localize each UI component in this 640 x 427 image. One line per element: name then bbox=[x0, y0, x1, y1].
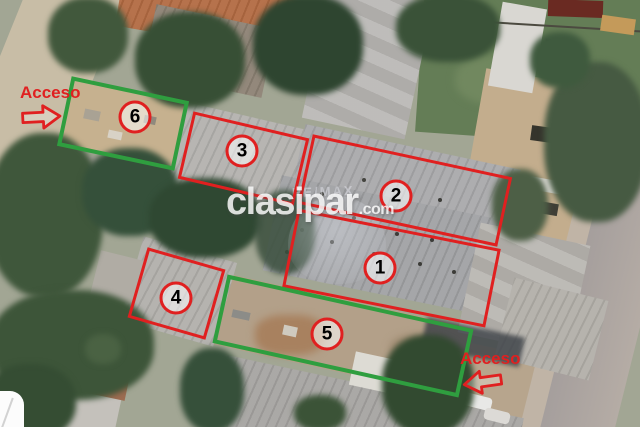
watermark-brand: clasipar bbox=[226, 183, 358, 221]
roof-vents bbox=[0, 0, 4, 4]
access-label-top-left: Acceso bbox=[20, 84, 80, 101]
tree-canopy bbox=[48, 0, 128, 73]
lot-number-badge-5: 5 bbox=[311, 318, 344, 351]
tree-canopy bbox=[253, 0, 363, 95]
corner-logo-line bbox=[0, 398, 14, 427]
listing-photo: RE/MAX 123456 Acceso Acceso clasipar .co… bbox=[0, 0, 640, 427]
lot-number-badge-3: 3 bbox=[226, 135, 259, 168]
tree-canopy bbox=[294, 395, 346, 427]
tree-canopy bbox=[530, 32, 590, 88]
access-label-bottom-right: Acceso bbox=[460, 350, 520, 367]
lot-number-badge-1: 1 bbox=[364, 252, 397, 285]
truck-top-right bbox=[548, 0, 604, 18]
tree-canopy bbox=[85, 334, 121, 364]
tree-canopy bbox=[180, 348, 244, 427]
clasipar-watermark: clasipar .com bbox=[226, 183, 394, 221]
access-arrow-left-icon bbox=[460, 366, 506, 403]
tree-canopy bbox=[396, 0, 500, 62]
access-arrow-right-icon bbox=[20, 102, 63, 137]
watermark-tld: .com bbox=[359, 202, 394, 218]
corner-logo-box bbox=[0, 391, 24, 427]
lot-number-badge-6: 6 bbox=[119, 101, 152, 134]
lot-number-badge-4: 4 bbox=[160, 282, 193, 315]
